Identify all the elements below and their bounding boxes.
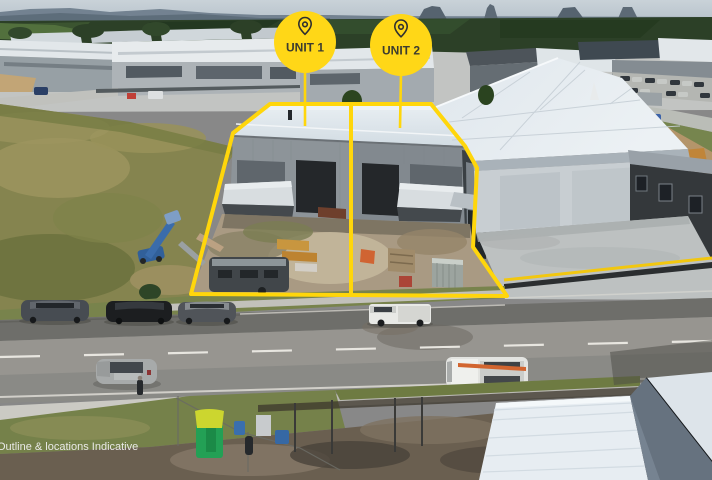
svg-text:UNIT 2: UNIT 2 <box>382 44 420 58</box>
svg-text:Outline & locations Indicative: Outline & locations Indicative <box>0 441 138 453</box>
svg-text:UNIT 1: UNIT 1 <box>286 41 324 55</box>
